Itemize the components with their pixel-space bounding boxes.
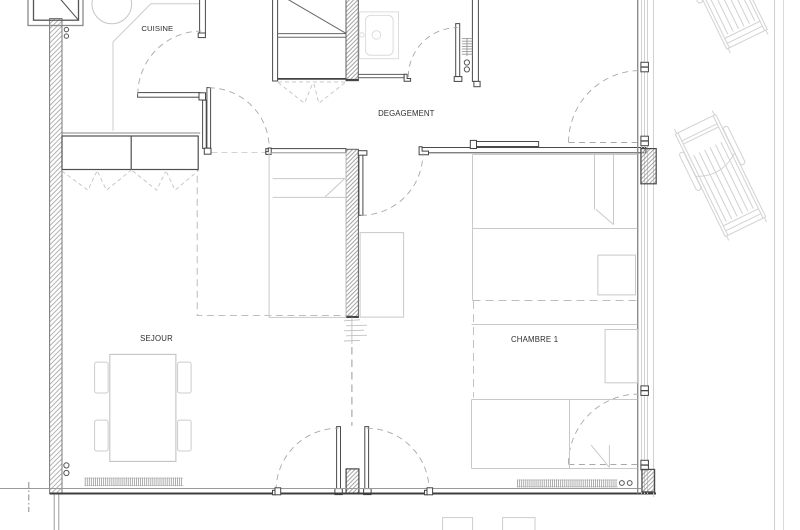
svg-text:DEGAGEMENT: DEGAGEMENT xyxy=(378,109,435,118)
svg-text:CUISINE: CUISINE xyxy=(141,24,173,33)
svg-text:CHAMBRE 1: CHAMBRE 1 xyxy=(511,335,558,344)
svg-text:SEJOUR: SEJOUR xyxy=(140,334,173,343)
